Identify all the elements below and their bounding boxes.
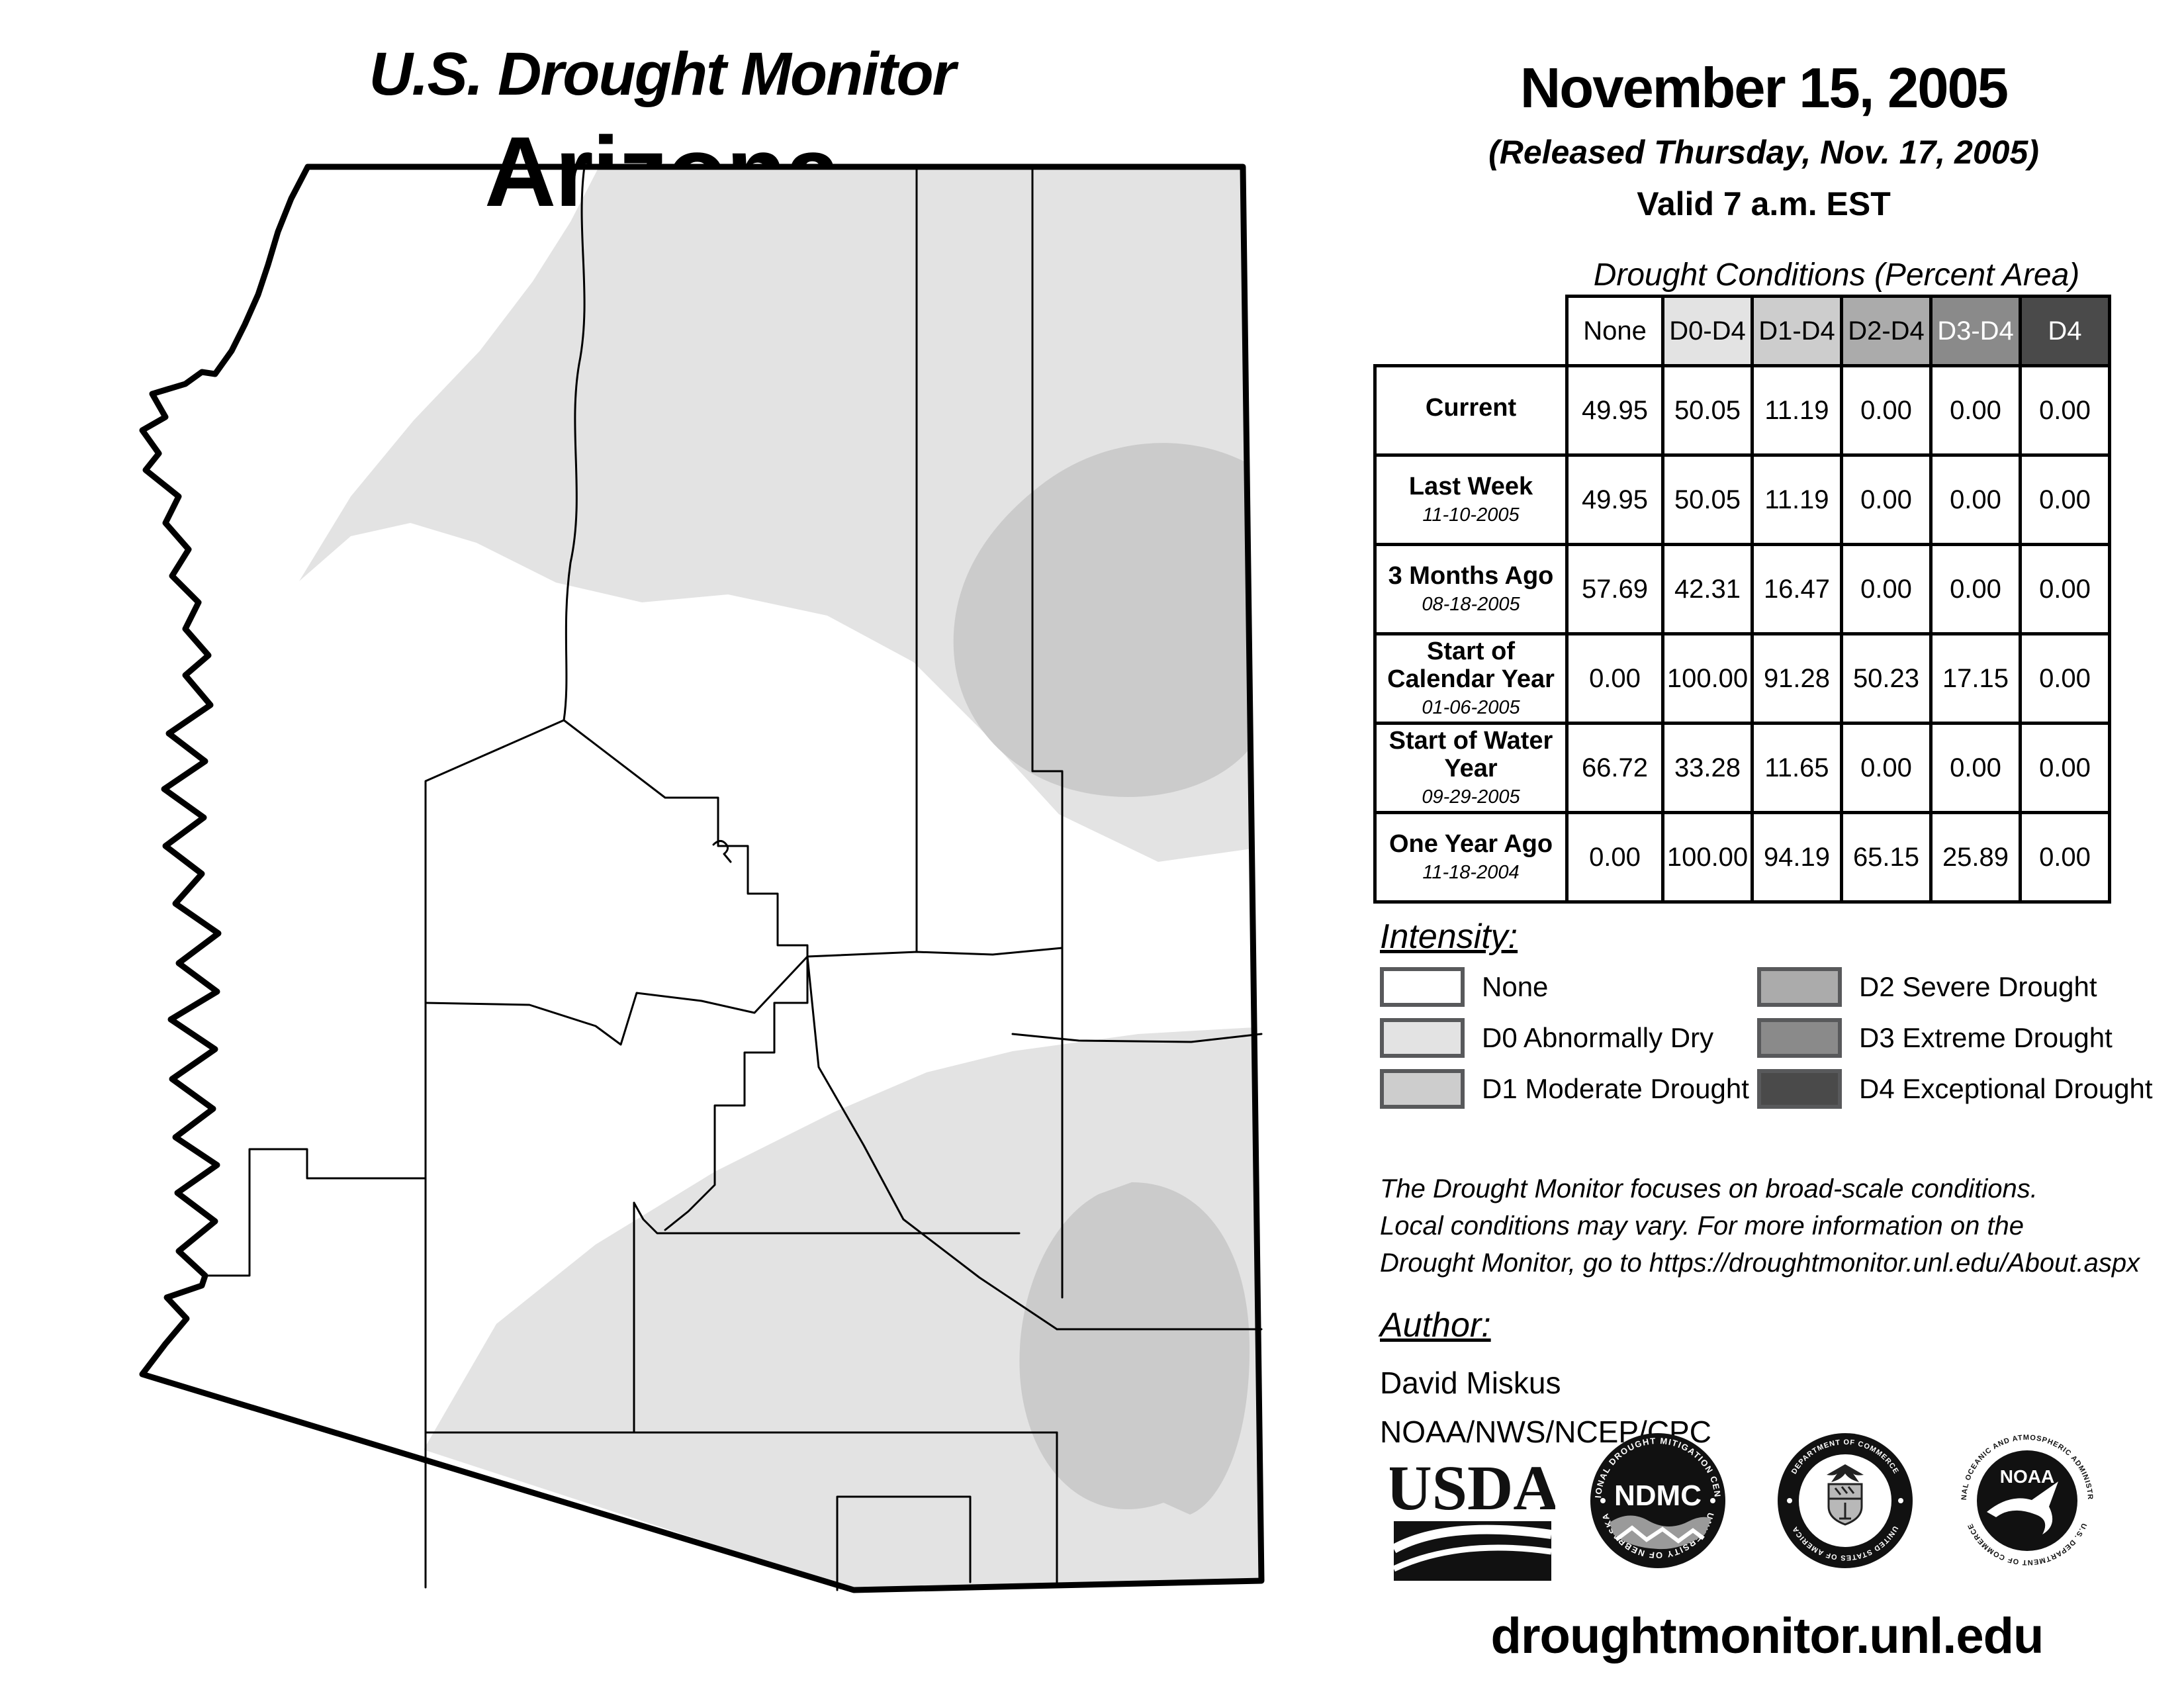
cell-value: 0.00 (2021, 813, 2110, 902)
svg-text:NOAA: NOAA (2000, 1466, 2054, 1487)
arizona-drought-map (66, 152, 1324, 1662)
cell-value: 0.00 (1842, 455, 1931, 545)
cell-value: 0.00 (1842, 545, 1931, 634)
cell-value: 33.28 (1663, 724, 1752, 813)
disclaimer-text: The Drought Monitor focuses on broad-sca… (1380, 1170, 2140, 1282)
cell-value: 0.00 (1931, 455, 2021, 545)
row-header: Current (1375, 366, 1567, 455)
row-header: Start of Calendar Year01-06-2005 (1375, 634, 1567, 724)
cell-value: 50.05 (1663, 455, 1752, 545)
cell-value: 57.69 (1567, 545, 1663, 634)
table-row: 3 Months Ago08-18-2005 57.69 42.31 16.47… (1375, 545, 2110, 634)
drought-shading-layer (299, 167, 1261, 1590)
table-row: Last Week11-10-2005 49.95 50.05 11.19 0.… (1375, 455, 2110, 545)
d0-swatch (1380, 1018, 1465, 1058)
map-date: November 15, 2005 (1403, 56, 2124, 121)
cell-value: 66.72 (1567, 724, 1663, 813)
noaa-logo: NATIONAL OCEANIC AND ATMOSPHERIC ADMINIS… (1958, 1431, 2097, 1570)
cell-value: 91.28 (1752, 634, 1842, 724)
legend-heading: Intensity: (1380, 917, 1518, 957)
ndmc-logo: NATIONAL DROUGHT MITIGATION CENTER UNIVE… (1588, 1431, 1727, 1570)
cell-value: 100.00 (1663, 634, 1752, 724)
cell-value: 65.15 (1842, 813, 1931, 902)
valid-time: Valid 7 a.m. EST (1403, 185, 2124, 223)
cell-value: 0.00 (1931, 724, 2021, 813)
legend-item-none: None (1380, 965, 1757, 1009)
svg-text:USDA: USDA (1390, 1452, 1555, 1523)
cell-value: 0.00 (2021, 724, 2110, 813)
legend-item-d2: D2 Severe Drought (1757, 965, 2181, 1009)
drought-conditions-table: None D0-D4 D1-D4 D2-D4 D3-D4 D4 Current … (1373, 295, 2111, 904)
usda-logo: USDA (1390, 1448, 1555, 1584)
release-date: (Released Thursday, Nov. 17, 2005) (1403, 133, 2124, 171)
cell-value: 0.00 (1842, 366, 1931, 455)
cell-value: 0.00 (2021, 455, 2110, 545)
date-block: November 15, 2005 (Released Thursday, No… (1403, 56, 2124, 223)
cell-value: 25.89 (1931, 813, 2021, 902)
svg-text:NDMC: NDMC (1614, 1479, 1702, 1512)
cell-value: 49.95 (1567, 455, 1663, 545)
footer-url: droughtmonitor.unl.edu (1377, 1607, 2158, 1665)
cell-value: 11.19 (1752, 455, 1842, 545)
row-header: One Year Ago11-18-2004 (1375, 813, 1567, 902)
row-header: Last Week11-10-2005 (1375, 455, 1567, 545)
cell-value: 0.00 (2021, 366, 2110, 455)
column-header-d2-d4: D2-D4 (1842, 297, 1931, 366)
column-header-d3-d4: D3-D4 (1931, 297, 2021, 366)
author-name: David Miskus (1380, 1365, 1561, 1401)
cell-value: 17.15 (1931, 634, 2021, 724)
cell-value: 50.23 (1842, 634, 1931, 724)
table-header-row: None D0-D4 D1-D4 D2-D4 D3-D4 D4 (1375, 297, 2110, 366)
table-row: Start of Water Year09-29-2005 66.72 33.2… (1375, 724, 2110, 813)
d3-swatch (1757, 1018, 1842, 1058)
cell-value: 11.65 (1752, 724, 1842, 813)
column-header-d1-d4: D1-D4 (1752, 297, 1842, 366)
cell-value: 0.00 (1567, 813, 1663, 902)
row-header: Start of Water Year09-29-2005 (1375, 724, 1567, 813)
table-row: Start of Calendar Year01-06-2005 0.00 10… (1375, 634, 2110, 724)
none-swatch (1380, 967, 1465, 1007)
cell-value: 16.47 (1752, 545, 1842, 634)
d1-swatch (1380, 1069, 1465, 1109)
legend-item-d4: D4 Exceptional Drought (1757, 1067, 2181, 1111)
cell-value: 42.31 (1663, 545, 1752, 634)
cell-value: 100.00 (1663, 813, 1752, 902)
author-heading: Author: (1380, 1305, 1491, 1345)
cell-value: 0.00 (1931, 545, 2021, 634)
cell-value: 0.00 (1567, 634, 1663, 724)
drought-monitor-report: { "title": { "monitor": "U.S. Drought Mo… (0, 0, 2184, 1688)
table-row: One Year Ago11-18-2004 0.00 100.00 94.19… (1375, 813, 2110, 902)
cell-value: 0.00 (2021, 545, 2110, 634)
intensity-legend: None D0 Abnormally Dry D1 Moderate Droug… (1380, 965, 2174, 1118)
report-title: U.S. Drought Monitor (66, 40, 1257, 109)
cell-value: 94.19 (1752, 813, 1842, 902)
cell-value: 11.19 (1752, 366, 1842, 455)
row-header: 3 Months Ago08-18-2005 (1375, 545, 1567, 634)
cell-value: 50.05 (1663, 366, 1752, 455)
column-header-d4: D4 (2021, 297, 2110, 366)
column-header-d0-d4: D0-D4 (1663, 297, 1752, 366)
table-corner-cell (1375, 297, 1567, 366)
legend-item-d0: D0 Abnormally Dry (1380, 1016, 1757, 1060)
cell-value: 0.00 (1842, 724, 1931, 813)
table-row: Current 49.95 50.05 11.19 0.00 0.00 0.00 (1375, 366, 2110, 455)
column-header-none: None (1567, 297, 1663, 366)
legend-item-d1: D1 Moderate Drought (1380, 1067, 1757, 1111)
cell-value: 0.00 (2021, 634, 2110, 724)
cell-value: 0.00 (1931, 366, 2021, 455)
table-caption: Drought Conditions (Percent Area) (1565, 257, 2108, 293)
department-of-commerce-seal: DEPARTMENT OF COMMERCE UNITED STATES OF … (1776, 1431, 1915, 1570)
legend-item-d3: D3 Extreme Drought (1757, 1016, 2181, 1060)
cell-value: 49.95 (1567, 366, 1663, 455)
d2-swatch (1757, 967, 1842, 1007)
d4-swatch (1757, 1069, 1842, 1109)
